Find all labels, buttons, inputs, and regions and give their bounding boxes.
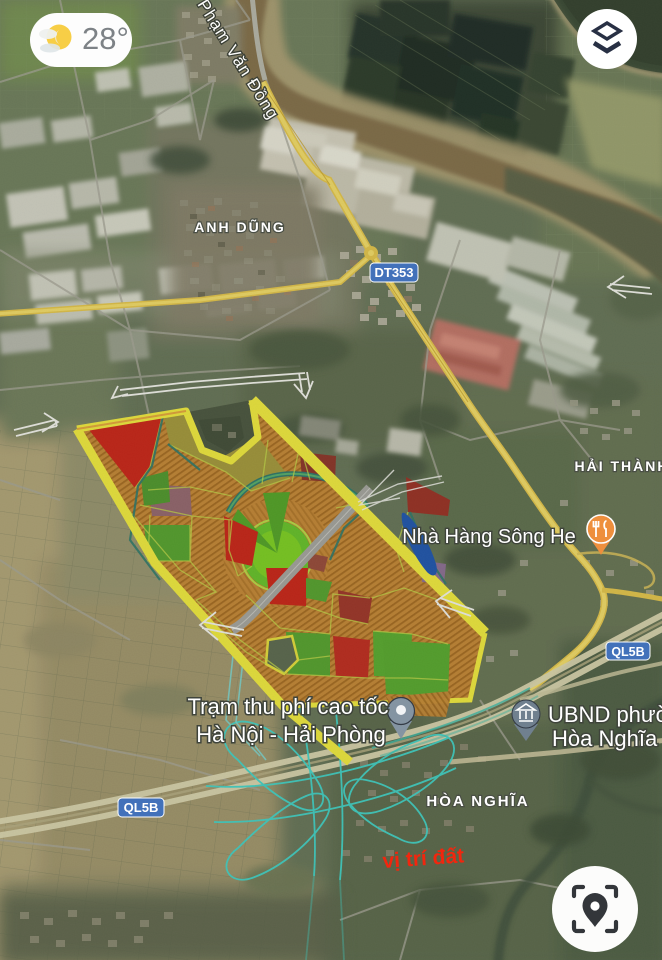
svg-text:Nhà Hàng Sông He: Nhà Hàng Sông He — [402, 526, 575, 548]
svg-text:QL5B: QL5B — [124, 800, 159, 815]
svg-text:HÒA NGHĨA: HÒA NGHĨA — [426, 792, 529, 810]
svg-text:Trạm thu phí cao tốc: Trạm thu phí cao tốc — [188, 694, 389, 719]
svg-text:Hòa Nghĩa: Hòa Nghĩa — [552, 726, 658, 751]
svg-text:QL5B: QL5B — [611, 645, 644, 659]
svg-text:HẢI THÀNH: HẢI THÀNH — [575, 458, 662, 474]
svg-text:Hà Nội - Hải Phòng: Hà Nội - Hải Phòng — [196, 722, 386, 747]
svg-text:28°: 28° — [82, 21, 129, 56]
svg-text:UBND phườn: UBND phườn — [548, 702, 662, 727]
svg-text:DT353: DT353 — [374, 265, 413, 280]
svg-text:ANH DŨNG: ANH DŨNG — [194, 218, 285, 235]
